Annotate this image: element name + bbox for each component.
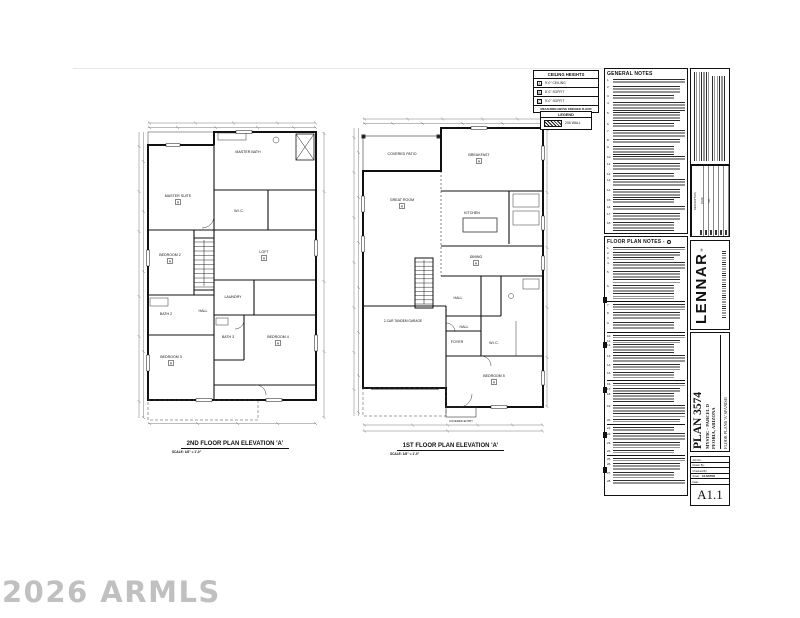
floor-plan-notes-panel: FLOOR PLAN NOTES - <box>604 236 688 496</box>
note-item <box>607 419 685 422</box>
note-item <box>607 222 685 231</box>
room-label: FOYER <box>451 340 464 344</box>
note-item <box>607 130 685 138</box>
driveway-dashed <box>363 388 446 416</box>
community-name: MYSTIC - PARCEL D <box>705 335 710 449</box>
disclaimer-text-column <box>712 76 727 161</box>
ceiling-heights-title: CEILING HEIGHTS <box>534 71 598 79</box>
note-item <box>607 199 685 204</box>
note-item <box>607 252 685 256</box>
room-label: HALL <box>454 296 463 300</box>
note-item <box>607 123 685 128</box>
room-label: LOFT <box>259 250 269 254</box>
svg-text:A: A <box>170 361 173 365</box>
watermark: 2026 ARMLS <box>2 575 221 609</box>
room-label: MASTER BATH <box>235 150 261 154</box>
note-item <box>607 472 685 478</box>
svg-text:A: A <box>478 159 481 163</box>
ceiling-key: A <box>262 256 267 261</box>
svg-text:A: A <box>401 204 404 208</box>
note-item <box>607 433 685 441</box>
kitchen-fixtures <box>371 194 539 390</box>
ceiling-key: A <box>168 259 173 264</box>
door-swings <box>202 216 266 395</box>
disclaimer-block <box>690 68 730 165</box>
general-notes-title: GENERAL NOTES <box>607 71 685 77</box>
room-label: W.I.C. <box>489 341 499 345</box>
stairs <box>415 258 433 308</box>
note-item <box>607 364 685 370</box>
wall-hatch-swatch <box>544 120 562 127</box>
note-item <box>607 86 685 94</box>
room-label: HALL <box>460 325 469 329</box>
note-item <box>607 247 685 250</box>
plan-number: PLAN 3574 <box>692 335 704 449</box>
floor-plan-notes-title: FLOOR PLAN NOTES - <box>607 239 685 245</box>
svg-text:A: A <box>493 380 496 384</box>
note-item <box>607 189 685 198</box>
note-item <box>607 372 685 378</box>
ceiling-height-row: C 9'-0" SOFFIT <box>534 97 598 106</box>
key-c: C <box>537 99 542 104</box>
room-label: COVERED ENTRY <box>449 419 473 423</box>
svg-text:A: A <box>475 261 478 265</box>
scanned-plan-page: MASTER SUITE A MASTER BATH W.I.C. BEDROO… <box>0 0 800 618</box>
note-item <box>607 442 685 448</box>
note-tab <box>603 297 607 303</box>
note-item <box>607 312 685 320</box>
note-item <box>607 405 685 417</box>
entry-porch <box>446 407 476 417</box>
note-tab <box>603 342 607 348</box>
room-label: HALL <box>199 309 208 313</box>
interior-walls <box>363 191 543 388</box>
divider <box>720 335 721 449</box>
room-label: LAUNDRY <box>224 295 242 299</box>
note-item <box>607 163 685 171</box>
note-item <box>607 257 685 260</box>
first-floor-caption: 1ST FLOOR PLAN ELEVATION 'A' SCALE: 1/8"… <box>368 434 533 456</box>
ceiling-key: A <box>477 159 482 164</box>
sheet-info-block: Job No: Drawn By: Checked By: Scale:AS N… <box>690 456 730 506</box>
svg-text:A: A <box>169 259 172 263</box>
door-swings <box>446 323 491 407</box>
note-tab <box>603 432 607 438</box>
room-label: BATH 2 <box>160 312 172 316</box>
ceiling-key: A <box>492 380 497 385</box>
revision-entries <box>700 230 728 235</box>
note-item <box>607 112 685 121</box>
note-item <box>607 79 685 84</box>
note-item <box>607 480 685 484</box>
note-item <box>607 332 685 338</box>
note-item <box>607 213 685 221</box>
note-item <box>607 455 685 461</box>
ceiling-height-row: A 9'-0" CEILING <box>534 79 598 88</box>
note-item <box>607 380 685 386</box>
ceiling-key: A <box>400 204 405 209</box>
plan-scale: SCALE: 1/8" = 1'-0" <box>390 452 533 456</box>
note-item <box>607 156 685 161</box>
note-item <box>607 146 685 155</box>
note-item <box>607 262 685 270</box>
registered-mark: ® <box>699 246 704 253</box>
note-item <box>607 301 685 310</box>
shower <box>296 134 314 160</box>
deck-outline <box>148 132 214 145</box>
disclaimer-text-column <box>694 72 709 161</box>
room-label: BATH 3 <box>222 335 234 339</box>
note-item <box>607 102 685 111</box>
room-label: BEDROOM 4 <box>267 335 289 339</box>
room-label: GREAT ROOM <box>390 198 414 202</box>
builder-logo-block: LENNAR® <box>690 240 730 330</box>
patio-dashed <box>148 400 258 420</box>
room-label: W.I.C. <box>234 209 244 213</box>
note-item <box>607 463 685 471</box>
note-tab <box>603 467 607 473</box>
room-label: KITCHEN <box>464 211 480 215</box>
note-item <box>607 139 685 144</box>
plan-title: 2ND FLOOR PLAN ELEVATION 'A' <box>181 441 290 449</box>
sheet-description: FLOOR PLANS 'A' SPANISH <box>723 335 728 449</box>
room-label: DINING <box>470 255 483 259</box>
key-a: A <box>537 81 542 86</box>
builder-address <box>722 251 727 319</box>
room-label: BEDROOM 5 <box>483 374 505 378</box>
legend-row: 2X6 WALL <box>541 118 591 129</box>
room-label: BREAKFAST <box>468 153 490 157</box>
note-symbol-icon <box>667 240 672 245</box>
ceiling-heights-table: CEILING HEIGHTS A 9'-0" CEILING B 8'-0" … <box>533 70 599 113</box>
exterior-walls <box>363 128 543 407</box>
note-item <box>607 344 685 353</box>
second-floor-plan: MASTER SUITE A MASTER BATH W.I.C. BEDROO… <box>136 120 331 430</box>
first-floor-plan: COVERED PATIO BREAKFAST A GREAT ROOM A K… <box>351 116 551 436</box>
revision-table: DESCRIPTION DATE NO. <box>690 165 730 237</box>
room-label: COVERED PATIO <box>387 152 416 156</box>
stairs <box>194 238 214 290</box>
note-item <box>607 285 685 299</box>
note-item <box>607 322 685 330</box>
ceiling-height-row: B 8'-0" SOFFIT <box>534 88 598 97</box>
second-floor-caption: 2ND FLOOR PLAN ELEVATION 'A' SCALE: 1/8"… <box>150 432 320 454</box>
note-item <box>607 450 685 453</box>
note-item <box>607 173 685 178</box>
floor-plan-notes-list <box>607 247 685 484</box>
windows <box>362 127 545 409</box>
project-title-block: PLAN 3574 MYSTIC - PARCEL D PEORIA, ARIZ… <box>690 332 730 452</box>
note-item <box>607 388 685 392</box>
note-item <box>607 179 685 187</box>
dimension-lines <box>138 122 326 426</box>
room-label: 2-CAR TANDEM GARAGE <box>384 319 422 323</box>
ceiling-key: A <box>176 200 181 205</box>
room-label: MASTER SUITE <box>165 194 192 198</box>
revision-headers: DESCRIPTION DATE NO. <box>691 166 699 236</box>
sheet-number: A1.1 <box>691 485 729 505</box>
note-item <box>607 424 685 431</box>
svg-text:A: A <box>177 200 180 204</box>
interior-walls <box>148 132 316 400</box>
plan-scale: SCALE: 1/8" = 1'-0" <box>172 450 320 454</box>
dimension-lines <box>353 118 549 433</box>
svg-text:A: A <box>263 256 266 260</box>
plan-title: 1ST FLOOR PLAN ELEVATION 'A' <box>397 443 505 451</box>
note-item <box>607 206 685 211</box>
general-notes-panel: GENERAL NOTES <box>604 68 688 234</box>
ceiling-key: A <box>169 361 174 366</box>
room-label: BEDROOM 2 <box>159 253 181 257</box>
revision-columns <box>699 166 729 236</box>
note-tab <box>603 387 607 393</box>
note-item <box>607 271 685 283</box>
note-item <box>607 340 685 343</box>
windows <box>147 131 318 402</box>
builder-logo: LENNAR® <box>693 243 722 327</box>
ceiling-key: A <box>474 261 479 266</box>
general-notes-list <box>607 79 685 231</box>
note-item <box>607 355 685 363</box>
key-b: B <box>537 90 542 95</box>
ceiling-key: A <box>276 341 281 346</box>
svg-text:A: A <box>277 341 280 345</box>
project-location: PEORIA, ARIZONA <box>711 335 716 449</box>
note-item <box>607 95 685 100</box>
legend-box: LEGEND 2X6 WALL <box>540 111 592 130</box>
note-item <box>607 393 685 403</box>
room-label: BEDROOM 3 <box>160 355 182 359</box>
